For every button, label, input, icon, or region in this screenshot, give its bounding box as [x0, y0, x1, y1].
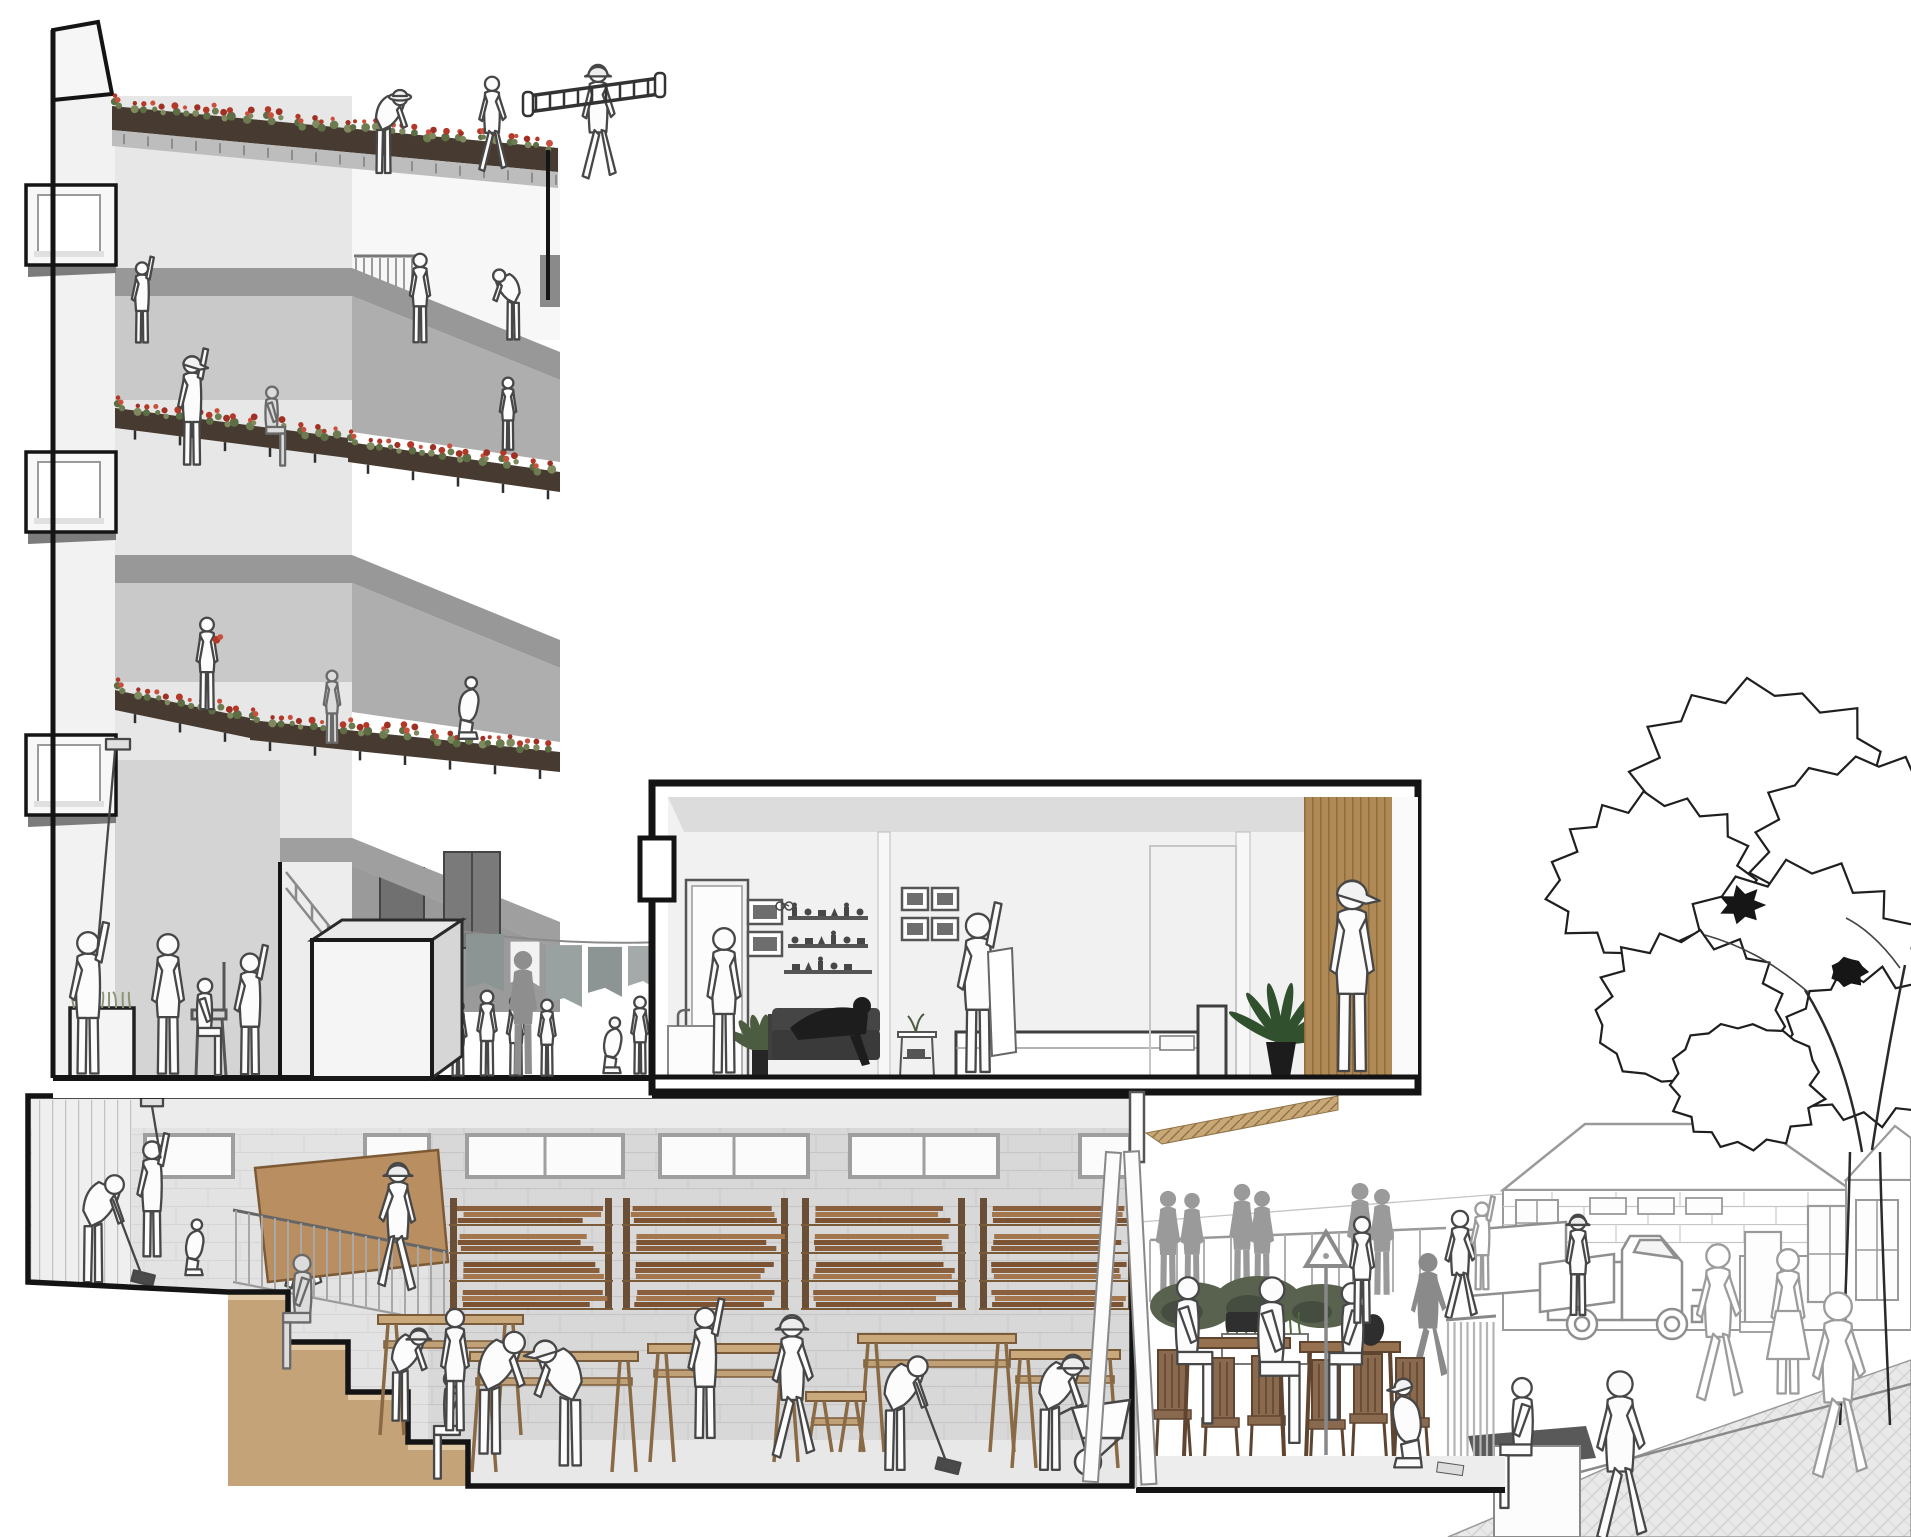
clerestory-window — [658, 1133, 810, 1179]
house-gable — [1846, 1126, 1911, 1330]
window-box — [26, 452, 116, 544]
timber-rack — [622, 1198, 789, 1310]
left-building-section — [26, 22, 665, 1098]
timber-rack — [449, 1198, 613, 1310]
clerestory-window — [465, 1133, 625, 1179]
apartment-side-window — [640, 838, 674, 900]
workshop-ceiling — [28, 1096, 1132, 1128]
roof-ladder-carrier — [583, 65, 616, 179]
carried-plywood-board — [255, 1150, 448, 1282]
courtyard-croucher — [603, 1018, 621, 1074]
window-box — [26, 185, 116, 277]
headboard — [1198, 1006, 1226, 1077]
apartment-ceiling — [668, 797, 1392, 832]
architectural-section-illustration — [0, 0, 1911, 1537]
hanging-laundry — [546, 945, 582, 1007]
courtyard-kid-5 — [631, 997, 649, 1074]
terrace-silhouette-6 — [1370, 1189, 1394, 1295]
pillow — [1160, 1036, 1194, 1050]
concrete-planter-cube — [312, 920, 462, 1078]
scene-svg — [0, 0, 1911, 1537]
wood-soffit — [1146, 1096, 1338, 1144]
parapet — [53, 22, 112, 100]
clerestory-window — [848, 1133, 1000, 1179]
outdoor-terrace — [1136, 1183, 1505, 1490]
folded-sheet — [988, 948, 1016, 1056]
hanging-laundry — [588, 947, 622, 997]
terrace-chair — [1350, 1354, 1387, 1466]
window-box — [26, 735, 116, 827]
workshop-hall — [28, 1096, 1136, 1486]
